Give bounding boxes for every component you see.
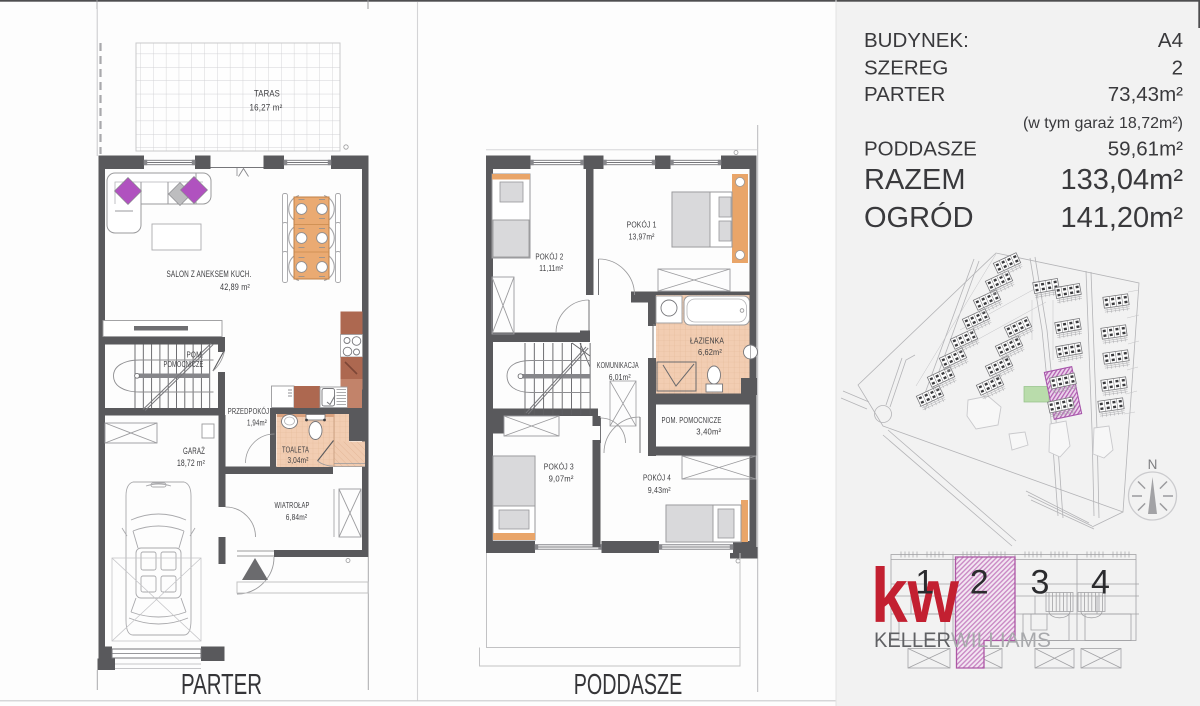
- svg-text:N: N: [1148, 457, 1158, 472]
- svg-text:2: 2: [1172, 57, 1183, 80]
- svg-text:POMOCNICZE: POMOCNICZE: [164, 359, 204, 369]
- svg-text:4: 4: [1091, 564, 1110, 602]
- svg-text:1: 1: [915, 564, 934, 602]
- svg-text:PODDASZE: PODDASZE: [574, 669, 683, 701]
- svg-text:9,07m²: 9,07m²: [549, 474, 574, 484]
- svg-text:TARAS: TARAS: [254, 89, 280, 99]
- svg-text:POM.: POM.: [187, 350, 204, 360]
- svg-text:POKÓJ 1: POKÓJ 1: [627, 220, 657, 230]
- svg-text:16,27 m²: 16,27 m²: [250, 103, 283, 113]
- svg-text:A4: A4: [1158, 29, 1183, 52]
- svg-text:PARTER: PARTER: [181, 669, 262, 701]
- svg-text:SZEREG: SZEREG: [864, 57, 948, 80]
- svg-text:ŁAZIENKA: ŁAZIENKA: [690, 336, 724, 346]
- svg-text:OGRÓD: OGRÓD: [864, 201, 974, 234]
- svg-text:RAZEM: RAZEM: [864, 164, 966, 196]
- svg-text:9,43m²: 9,43m²: [648, 485, 671, 495]
- svg-text:59,61m²: 59,61m²: [1108, 138, 1183, 161]
- svg-text:KOMUNIKACJA: KOMUNIKACJA: [597, 360, 639, 370]
- svg-text:GARAŻ: GARAŻ: [183, 446, 205, 456]
- svg-text:13,97m²: 13,97m²: [629, 232, 655, 242]
- svg-text:PODDASZE: PODDASZE: [864, 138, 977, 161]
- svg-text:1,94m²: 1,94m²: [247, 418, 267, 428]
- svg-text:3,40m²: 3,40m²: [696, 427, 721, 437]
- svg-text:6,01m²: 6,01m²: [609, 372, 631, 382]
- svg-text:POKÓJ 3: POKÓJ 3: [544, 462, 574, 472]
- svg-text:11,11m²: 11,11m²: [539, 263, 563, 273]
- svg-text:6,62m²: 6,62m²: [698, 347, 722, 357]
- svg-text:PRZEDPOKÓJ: PRZEDPOKÓJ: [228, 406, 270, 416]
- svg-text:KELLER: KELLER: [874, 629, 951, 652]
- svg-text:3: 3: [1031, 564, 1050, 602]
- svg-text:42,89 m²: 42,89 m²: [220, 282, 250, 292]
- svg-text:(w tym garaż 18,72m²): (w tym garaż 18,72m²): [1023, 115, 1183, 132]
- svg-text:BUDYNEK:: BUDYNEK:: [864, 29, 969, 52]
- svg-text:SALON Z ANEKSEM KUCH.: SALON Z ANEKSEM KUCH.: [167, 269, 252, 279]
- svg-text:POKÓJ 2: POKÓJ 2: [535, 252, 563, 262]
- svg-text:POM. POMOCNICZE: POM. POMOCNICZE: [662, 415, 722, 425]
- svg-text:WIATROŁAP: WIATROŁAP: [275, 500, 310, 510]
- svg-text:141,20m²: 141,20m²: [1060, 202, 1183, 234]
- svg-text:3,04m²: 3,04m²: [288, 455, 309, 465]
- svg-text:6,84m²: 6,84m²: [286, 512, 308, 522]
- svg-text:WILLIAMS: WILLIAMS: [951, 629, 1051, 652]
- svg-text:TOALETA: TOALETA: [282, 445, 309, 455]
- svg-text:133,04m²: 133,04m²: [1060, 164, 1183, 196]
- svg-text:POKÓJ 4: POKÓJ 4: [643, 473, 671, 483]
- svg-text:18,72 m²: 18,72 m²: [177, 458, 205, 468]
- svg-text:PARTER: PARTER: [864, 83, 945, 106]
- svg-text:73,43m²: 73,43m²: [1108, 83, 1183, 106]
- svg-text:2: 2: [970, 564, 989, 602]
